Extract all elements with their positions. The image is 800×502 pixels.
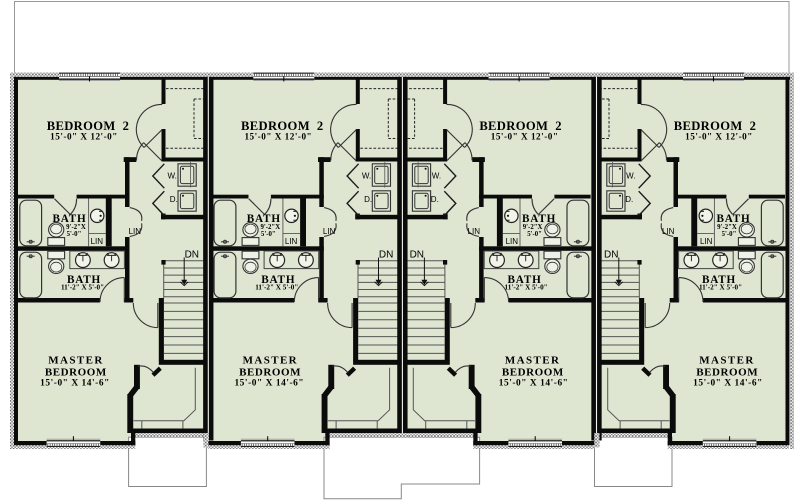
svg-text:BEDROOM: BEDROOM [239,366,301,378]
svg-text:5'-0": 5'-0" [67,231,82,238]
svg-text:LIN: LIN [323,227,336,236]
svg-text:15'-0" X 12'-0": 15'-0" X 12'-0" [491,132,559,142]
svg-text:11'-2" X 5'-0": 11'-2" X 5'-0" [505,283,548,291]
svg-text:15'-0" X 12'-0": 15'-0" X 12'-0" [244,132,312,142]
svg-text:11'-2" X 5'-0": 11'-2" X 5'-0" [255,283,298,291]
svg-text:W.: W. [168,171,177,180]
svg-text:D.: D. [170,195,178,204]
svg-text:DN: DN [410,250,424,261]
svg-text:LIN: LIN [662,227,675,236]
svg-text:LIN: LIN [506,237,519,246]
svg-text:LIN: LIN [285,237,298,246]
svg-text:D.: D. [431,195,439,204]
svg-text:BEDROOM: BEDROOM [696,366,758,378]
svg-text:15'-0" X 12'-0": 15'-0" X 12'-0" [50,132,118,142]
svg-text:5'-0": 5'-0" [261,231,276,238]
svg-text:MASTER: MASTER [699,355,754,367]
svg-text:W.: W. [432,171,441,180]
svg-text:DN: DN [379,250,393,261]
svg-text:W.: W. [626,171,635,180]
svg-text:5'-0": 5'-0" [527,231,542,238]
svg-text:15'-0" X 14'-6": 15'-0" X 14'-6" [234,379,304,389]
svg-text:DN: DN [185,250,199,261]
svg-text:D.: D. [625,195,633,204]
svg-text:DN: DN [604,250,618,261]
svg-text:LIN: LIN [468,227,481,236]
svg-text:D.: D. [364,195,372,204]
svg-text:15'-0" X 14'-6": 15'-0" X 14'-6" [499,379,569,389]
svg-text:BEDROOM: BEDROOM [502,366,564,378]
svg-text:MASTER: MASTER [243,355,298,367]
svg-text:LIN: LIN [700,237,713,246]
svg-text:MASTER: MASTER [505,355,560,367]
svg-text:BEDROOM: BEDROOM [45,366,107,378]
svg-text:LIN: LIN [129,227,142,236]
svg-text:5'-0": 5'-0" [722,231,737,238]
svg-text:15'-0" X 12'-0": 15'-0" X 12'-0" [685,132,753,142]
svg-text:11'-2" X 5'-0": 11'-2" X 5'-0" [61,283,104,291]
svg-text:15'-0" X 14'-6": 15'-0" X 14'-6" [693,379,763,389]
svg-text:W.: W. [362,171,371,180]
svg-text:MASTER: MASTER [48,355,103,367]
svg-text:11'-2" X 5'-0": 11'-2" X 5'-0" [699,283,742,291]
svg-text:LIN: LIN [91,237,104,246]
svg-text:15'-0" X 14'-6": 15'-0" X 14'-6" [40,379,110,389]
